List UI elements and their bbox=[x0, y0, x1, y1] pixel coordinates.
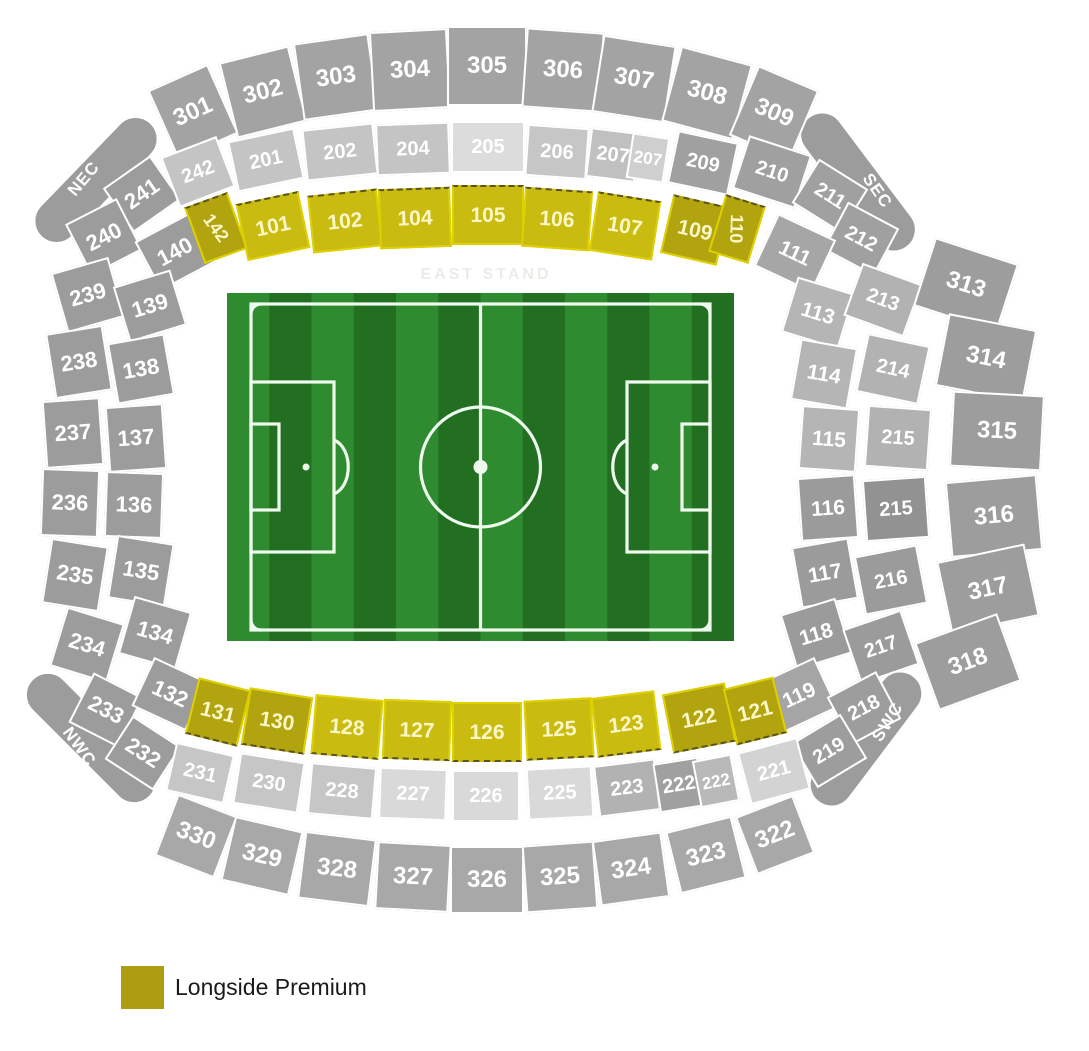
section-322[interactable]: 322 bbox=[735, 795, 815, 875]
section-205[interactable]: 205 bbox=[451, 121, 525, 173]
section-223[interactable]: 223 bbox=[593, 758, 661, 817]
legend: Longside Premium bbox=[121, 966, 367, 1009]
east-stand-label: EAST STAND bbox=[420, 266, 551, 284]
section-225[interactable]: 225 bbox=[526, 765, 595, 820]
section-136[interactable]: 136 bbox=[104, 471, 164, 539]
section-204[interactable]: 204 bbox=[375, 122, 451, 177]
section-105[interactable]: 105 bbox=[452, 185, 524, 245]
section-231[interactable]: 231 bbox=[165, 742, 235, 804]
section-326[interactable]: 326 bbox=[450, 846, 524, 914]
section-318[interactable]: 318 bbox=[914, 613, 1021, 711]
section-239[interactable]: 239 bbox=[51, 257, 126, 333]
section-213[interactable]: 213 bbox=[843, 263, 922, 338]
football-pitch bbox=[227, 293, 734, 641]
section-117[interactable]: 117 bbox=[791, 537, 859, 608]
section-315[interactable]: 315 bbox=[949, 391, 1045, 472]
section-202[interactable]: 202 bbox=[301, 122, 378, 181]
section-314[interactable]: 314 bbox=[935, 313, 1037, 403]
section-106[interactable]: 106 bbox=[521, 187, 593, 252]
section-102[interactable]: 102 bbox=[307, 189, 383, 254]
section-325[interactable]: 325 bbox=[522, 841, 599, 914]
section-135[interactable]: 135 bbox=[107, 535, 174, 607]
section-137[interactable]: 137 bbox=[105, 403, 167, 473]
section-126[interactable]: 126 bbox=[452, 702, 522, 762]
section-115[interactable]: 115 bbox=[798, 405, 860, 473]
stadium-map: Longside Premium 30130230330430530630730… bbox=[0, 0, 1089, 1051]
section-236[interactable]: 236 bbox=[40, 468, 100, 538]
section-323[interactable]: 323 bbox=[665, 816, 746, 895]
section-324[interactable]: 324 bbox=[592, 831, 671, 906]
section-107[interactable]: 107 bbox=[589, 191, 662, 260]
section-125[interactable]: 125 bbox=[523, 697, 594, 760]
legend-label: Longside Premium bbox=[175, 974, 367, 1001]
section-130[interactable]: 130 bbox=[241, 687, 313, 754]
section-316[interactable]: 316 bbox=[945, 474, 1043, 558]
section-214[interactable]: 214 bbox=[855, 333, 930, 405]
section-101[interactable]: 101 bbox=[236, 191, 311, 261]
section-228[interactable]: 228 bbox=[307, 762, 377, 820]
legend-swatch-longside-premium bbox=[121, 966, 164, 1009]
section-216[interactable]: 216 bbox=[854, 544, 928, 615]
section-230[interactable]: 230 bbox=[232, 752, 305, 814]
section-215[interactable]: 215 bbox=[864, 405, 932, 471]
section-304[interactable]: 304 bbox=[369, 28, 451, 112]
section-238[interactable]: 238 bbox=[45, 325, 113, 399]
section-114[interactable]: 114 bbox=[790, 338, 858, 409]
section-127[interactable]: 127 bbox=[382, 699, 452, 761]
section-138[interactable]: 138 bbox=[107, 333, 175, 404]
section-206[interactable]: 206 bbox=[524, 124, 589, 180]
section-234[interactable]: 234 bbox=[49, 607, 125, 684]
section-222-2[interactable]: 222 bbox=[692, 754, 740, 809]
section-118[interactable]: 118 bbox=[780, 598, 852, 670]
section-221[interactable]: 221 bbox=[737, 737, 811, 805]
section-237[interactable]: 237 bbox=[42, 397, 105, 469]
section-116[interactable]: 116 bbox=[797, 474, 859, 542]
section-235[interactable]: 235 bbox=[41, 538, 109, 612]
section-327[interactable]: 327 bbox=[374, 841, 451, 913]
section-128[interactable]: 128 bbox=[311, 694, 384, 760]
section-215-2[interactable]: 215 bbox=[862, 476, 930, 542]
section-226[interactable]: 226 bbox=[452, 770, 520, 822]
section-111[interactable]: 111 bbox=[754, 213, 837, 293]
section-104[interactable]: 104 bbox=[378, 187, 452, 249]
section-329[interactable]: 329 bbox=[220, 816, 303, 896]
section-209[interactable]: 209 bbox=[667, 130, 739, 196]
section-227[interactable]: 227 bbox=[378, 767, 448, 821]
section-305[interactable]: 305 bbox=[447, 26, 527, 106]
section-303[interactable]: 303 bbox=[293, 33, 379, 121]
section-123[interactable]: 123 bbox=[591, 690, 662, 757]
section-328[interactable]: 328 bbox=[297, 831, 377, 907]
section-207-2[interactable]: 207 bbox=[626, 132, 671, 183]
